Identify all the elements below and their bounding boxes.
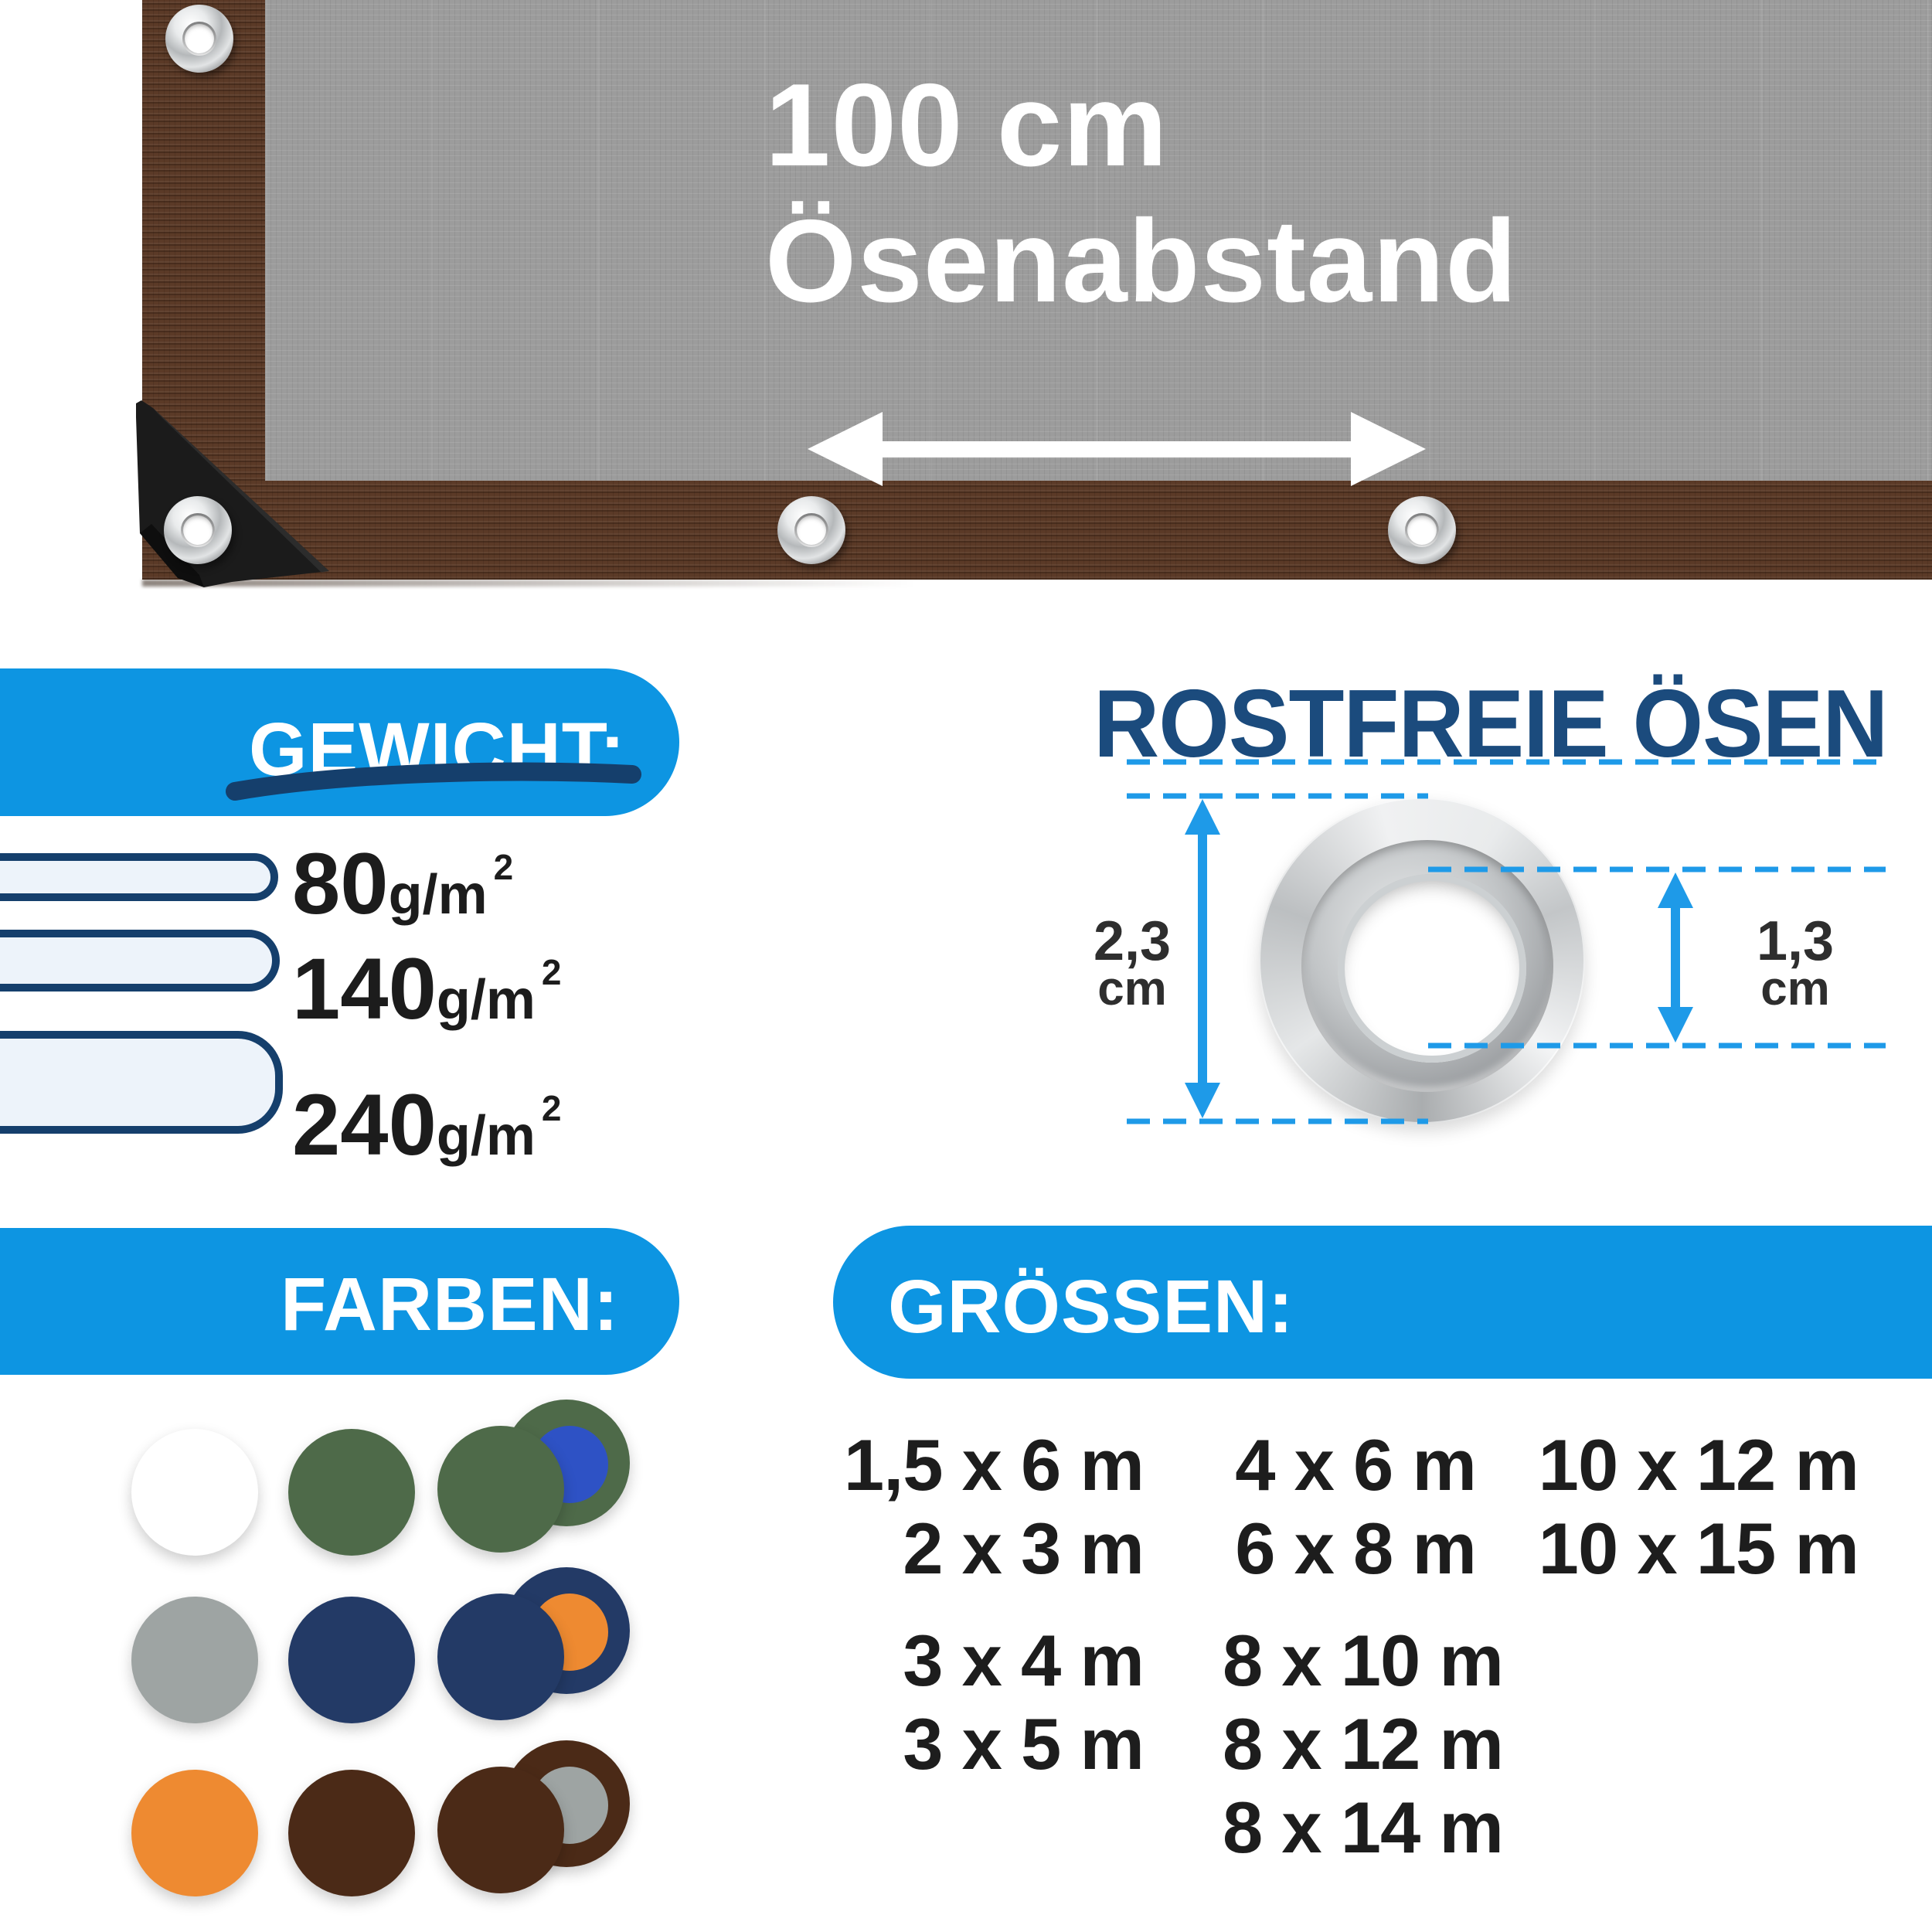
weight-value-240: 240g/m2 xyxy=(292,1082,561,1168)
size-option: 4 x 6 m xyxy=(1121,1429,1476,1502)
grommet-bottom-left-icon xyxy=(777,496,845,564)
color-swatch-brown xyxy=(288,1770,415,1896)
colors-section-title: FARBEN: xyxy=(281,1267,619,1342)
color-swatch-green-blue-front xyxy=(437,1426,564,1553)
distance-caption: Ösenabstand xyxy=(765,193,1518,329)
grommet-bottom-right-icon xyxy=(1388,496,1456,564)
distance-value: 100 cm xyxy=(765,57,1518,193)
color-swatch-gray xyxy=(131,1597,258,1723)
color-swatch-orange xyxy=(131,1770,258,1896)
corner-protector xyxy=(108,371,371,626)
color-swatch-brown-gray-front xyxy=(437,1767,564,1893)
underline-swoosh-icon xyxy=(224,750,657,819)
weight-value-80: 80g/m2 xyxy=(292,841,513,927)
weight-bar-80 xyxy=(0,853,278,901)
tarpaulin-product-infographic: 100 cm Ösenabstand GEWICHT: 80g/m2 140g/… xyxy=(0,0,1932,1932)
sizes-section-title: GRÖSSEN: xyxy=(888,1269,1294,1344)
size-option: 6 x 8 m xyxy=(1121,1512,1476,1585)
color-swatch-white xyxy=(131,1429,258,1556)
size-option: 2 x 3 m xyxy=(788,1512,1144,1585)
size-option: 10 x 15 m xyxy=(1503,1512,1859,1585)
color-swatch-green xyxy=(288,1429,415,1556)
inner-diameter-label: 1,3 cm xyxy=(1741,917,1849,1013)
grommet-corner-icon xyxy=(164,496,232,564)
weight-value-140: 140g/m2 xyxy=(292,946,561,1032)
outer-diameter-label: 2,3 cm xyxy=(1078,917,1186,1013)
size-option: 3 x 5 m xyxy=(788,1708,1144,1781)
size-option: 8 x 12 m xyxy=(1148,1708,1503,1781)
color-swatch-navy xyxy=(288,1597,415,1723)
grommet-top-left-icon xyxy=(165,5,233,73)
size-option: 10 x 12 m xyxy=(1503,1429,1859,1502)
eyelet-distance-label: 100 cm Ösenabstand xyxy=(765,57,1518,329)
weight-bar-240 xyxy=(0,1031,283,1134)
size-option: 3 x 4 m xyxy=(788,1624,1144,1697)
weight-bar-140 xyxy=(0,930,280,992)
eyelet-distance-arrow-icon xyxy=(788,399,1445,499)
size-option: 8 x 14 m xyxy=(1148,1791,1503,1864)
color-swatch-navy-orange-front xyxy=(437,1594,564,1720)
size-option: 8 x 10 m xyxy=(1148,1624,1503,1697)
size-option: 1,5 x 6 m xyxy=(788,1429,1144,1502)
